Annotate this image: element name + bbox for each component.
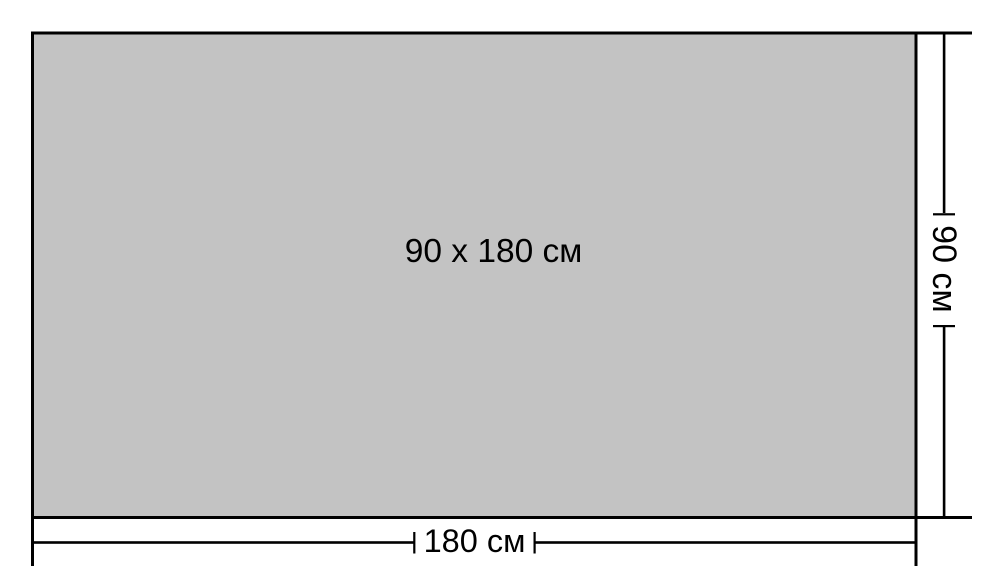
svg-text:90 x 180 см: 90 x 180 см [405,233,583,270]
svg-text:180 см: 180 см [424,523,526,559]
svg-text:90 см: 90 см [925,225,963,313]
